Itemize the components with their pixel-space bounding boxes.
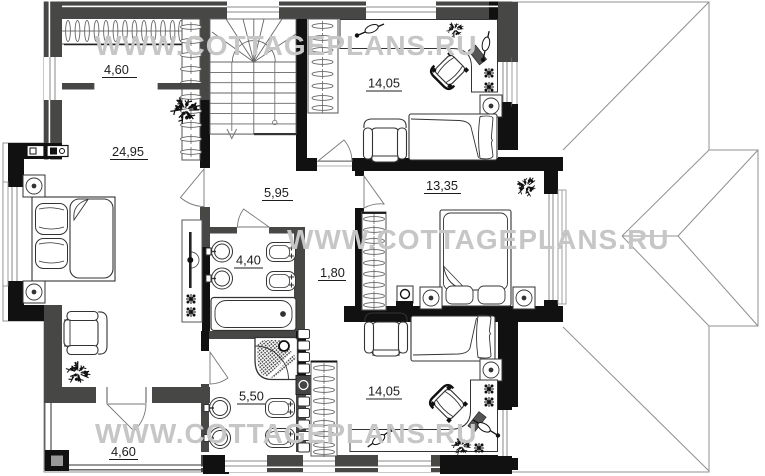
svg-text:5,50: 5,50	[239, 389, 264, 404]
svg-text:4,60: 4,60	[104, 62, 129, 77]
svg-text:14,05: 14,05	[368, 384, 400, 399]
svg-text:5,95: 5,95	[264, 185, 289, 200]
svg-text:24,95: 24,95	[112, 144, 144, 159]
svg-text:WWW.COTTAGEPLANS.RU: WWW.COTTAGEPLANS.RU	[287, 224, 669, 255]
svg-text:WWW.COTTAGEPLANS.RU: WWW.COTTAGEPLANS.RU	[95, 30, 477, 61]
svg-text:1,80: 1,80	[320, 265, 345, 280]
svg-text:13,35: 13,35	[426, 178, 458, 193]
svg-text:14,05: 14,05	[368, 76, 400, 91]
svg-text:WWW.COTTAGEPLANS.RU: WWW.COTTAGEPLANS.RU	[95, 418, 477, 449]
svg-text:4,40: 4,40	[236, 253, 261, 268]
